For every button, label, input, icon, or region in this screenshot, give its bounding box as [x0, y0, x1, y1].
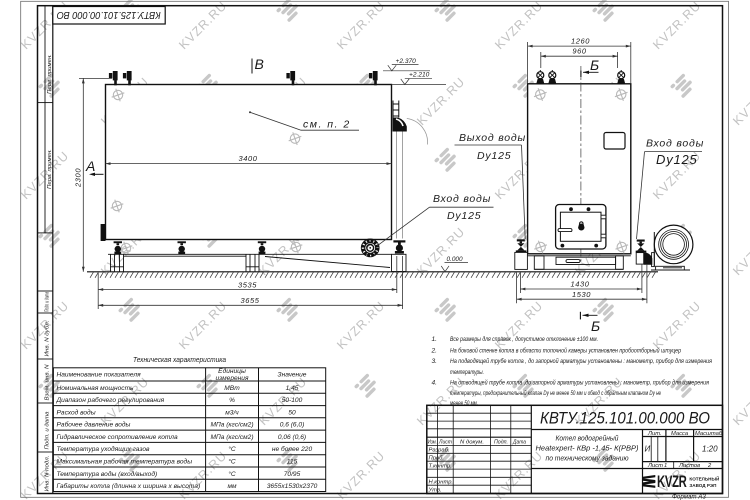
svg-text:Dy125: Dy125: [477, 150, 511, 162]
svg-text:0,06 (0,6): 0,06 (0,6): [278, 434, 306, 441]
svg-text:КВТУ.125.101.00.000 ВО: КВТУ.125.101.00.000 ВО: [540, 408, 710, 427]
svg-text:Максимальная рабочая температу: Максимальная рабочая температура воды: [57, 458, 193, 466]
svg-text:КОТЕЛЬНЫЙ: КОТЕЛЬНЫЙ: [689, 475, 719, 482]
svg-text:МПа (кгс/см2): МПа (кгс/см2): [210, 422, 253, 429]
svg-text:Значение: Значение: [278, 372, 307, 379]
svg-text:Формат А3: Формат А3: [672, 494, 706, 500]
svg-text:1: 1: [664, 463, 667, 469]
svg-text:+2.370: +2.370: [396, 58, 417, 65]
svg-text:Вход воды: Вход воды: [646, 138, 704, 150]
svg-text:МВт: МВт: [224, 385, 240, 392]
svg-text:На боковой стенке котла в обла: На боковой стенке котла в области топочн…: [450, 346, 681, 354]
svg-text:мм: мм: [227, 483, 237, 490]
svg-text:1.: 1.: [432, 336, 438, 343]
svg-text:Вход воды: Вход воды: [433, 193, 491, 205]
svg-text:м3/ч: м3/ч: [225, 409, 239, 416]
svg-text:Техническая характеристика: Техническая характеристика: [133, 355, 226, 364]
svg-text:3655х1530х2370: 3655х1530х2370: [267, 483, 318, 490]
svg-text:0.000: 0.000: [447, 256, 463, 263]
svg-text:115: 115: [287, 459, 298, 466]
svg-text:+2.210: +2.210: [409, 72, 430, 79]
svg-text:Габариты котла (длинна х ширин: Габариты котла (длинна х ширина х высота…: [57, 482, 201, 490]
svg-text:Инв. N подл.: Инв. N подл.: [44, 456, 50, 492]
svg-text:4.: 4.: [432, 379, 438, 386]
svg-text:температуры, предохранительный: температуры, предохранительный клапан Dу…: [450, 389, 661, 397]
svg-text:Утв.: Утв.: [428, 487, 442, 493]
svg-text:50-100: 50-100: [282, 397, 303, 404]
svg-text:Разраб.: Разраб.: [429, 448, 450, 454]
svg-text:70/95: 70/95: [284, 471, 301, 478]
svg-text:В: В: [255, 56, 264, 72]
svg-text:%: %: [229, 397, 235, 404]
svg-text:2.: 2.: [431, 347, 438, 354]
svg-text:°С: °С: [228, 445, 236, 453]
svg-text:Температура воды (вход/выход): Температура воды (вход/выход): [57, 470, 158, 478]
svg-text:Подп. и дата: Подп. и дата: [44, 292, 50, 312]
svg-text:не более 220: не более 220: [272, 445, 313, 453]
svg-text:Листов: Листов: [678, 463, 700, 469]
svg-text:Дата: Дата: [512, 440, 527, 446]
svg-text:Dy125: Dy125: [656, 152, 698, 167]
svg-text:Температура уходящих газов: Температура уходящих газов: [57, 445, 150, 453]
svg-text:2300: 2300: [74, 168, 83, 188]
svg-text:КВТУ.125.101.00.000 ВО: КВТУ.125.101.00.000 ВО: [57, 9, 161, 21]
svg-text:Изм.: Изм.: [428, 440, 437, 446]
svg-text:по техническому заданию: по техническому заданию: [546, 454, 629, 463]
svg-text:Масштаб: Масштаб: [695, 431, 723, 437]
svg-text:0,6 (6,0): 0,6 (6,0): [280, 422, 305, 429]
svg-text:Б: Б: [590, 57, 599, 73]
svg-text:Выход воды: Выход воды: [459, 132, 526, 144]
svg-text:3655: 3655: [240, 296, 259, 305]
svg-text:МПа (кгс/см2): МПа (кгс/см2): [210, 434, 253, 441]
svg-text:1530: 1530: [572, 290, 591, 299]
svg-text:Расход воды: Расход воды: [57, 408, 96, 416]
svg-text:менее 50 мм.: менее 50 мм.: [450, 400, 478, 407]
svg-text:°С: °С: [228, 458, 236, 466]
svg-text:1260: 1260: [571, 37, 590, 46]
svg-text:Перв. примен.: Перв. примен.: [47, 149, 53, 189]
svg-text:Диапазон рабочего регулировани: Диапазон рабочего регулирования: [56, 396, 165, 404]
svg-text:Все размеры для справок , допу: Все размеры для справок , допустимое отк…: [450, 335, 598, 343]
svg-text:И: И: [645, 445, 651, 454]
svg-text:Лист: Лист: [647, 463, 663, 469]
svg-text:Котел водогрейный: Котел водогрейный: [556, 434, 619, 443]
svg-text:Масса: Масса: [671, 431, 689, 437]
svg-text:На подводящей трубе котла ,: На подводящей трубе котла , до запорной …: [450, 357, 712, 365]
svg-text:А: А: [85, 158, 95, 174]
svg-text:ЗАВОД РЭП: ЗАВОД РЭП: [689, 483, 716, 488]
svg-text:Т.контр.: Т.контр.: [429, 463, 452, 469]
svg-text:Лит.: Лит.: [647, 431, 662, 437]
svg-text:Лист: Лист: [438, 440, 452, 446]
svg-text:Номинальная мощность: Номинальная мощность: [57, 385, 135, 392]
svg-text:Н.контр.: Н.контр.: [429, 479, 454, 485]
svg-text:50: 50: [288, 409, 296, 416]
svg-text:N докум.: N докум.: [460, 440, 484, 446]
svg-text:Гидравлическое сопротивление к: Гидравлическое сопротивление котла: [57, 433, 178, 441]
svg-text:1430: 1430: [570, 279, 589, 288]
svg-text:1,45: 1,45: [286, 385, 299, 392]
svg-text:Подп. и дата: Подп. и дата: [44, 411, 50, 449]
svg-text:Инв. N дубл.: Инв. N дубл.: [44, 321, 50, 357]
svg-text:Heatexpert- КВр -1,45- К(РВР): Heatexpert- КВр -1,45- К(РВР): [536, 444, 640, 453]
svg-text:°С: °С: [228, 470, 236, 478]
svg-text:1:20: 1:20: [702, 445, 718, 454]
svg-text:Наименование показателя: Наименование показателя: [57, 372, 142, 379]
svg-text:KVZR: KVZR: [657, 473, 687, 491]
svg-text:960: 960: [572, 47, 587, 56]
svg-text:измерения: измерения: [216, 375, 249, 382]
svg-text:Dy125: Dy125: [447, 210, 481, 222]
svg-text:3535: 3535: [238, 280, 257, 289]
svg-text:Перв. примен.: Перв. примен.: [47, 54, 53, 94]
svg-text:Б: Б: [591, 318, 600, 334]
svg-text:Проб.: Проб.: [429, 455, 445, 461]
svg-text:3400: 3400: [238, 154, 257, 163]
svg-text:Подп.: Подп.: [494, 440, 508, 446]
svg-text:Рабочее давление воды: Рабочее давление воды: [57, 421, 131, 429]
svg-text:На отводящей трубе котла ,до з: На отводящей трубе котла ,до запорной ар…: [450, 378, 709, 386]
svg-text:температуры.: температуры.: [450, 369, 484, 376]
svg-text:Взам. инв. N: Взам. инв. N: [44, 364, 50, 400]
svg-text:Единицы: Единицы: [218, 367, 246, 375]
svg-text:3.: 3.: [432, 358, 438, 365]
svg-text:см. п. 2: см. п. 2: [303, 119, 351, 131]
